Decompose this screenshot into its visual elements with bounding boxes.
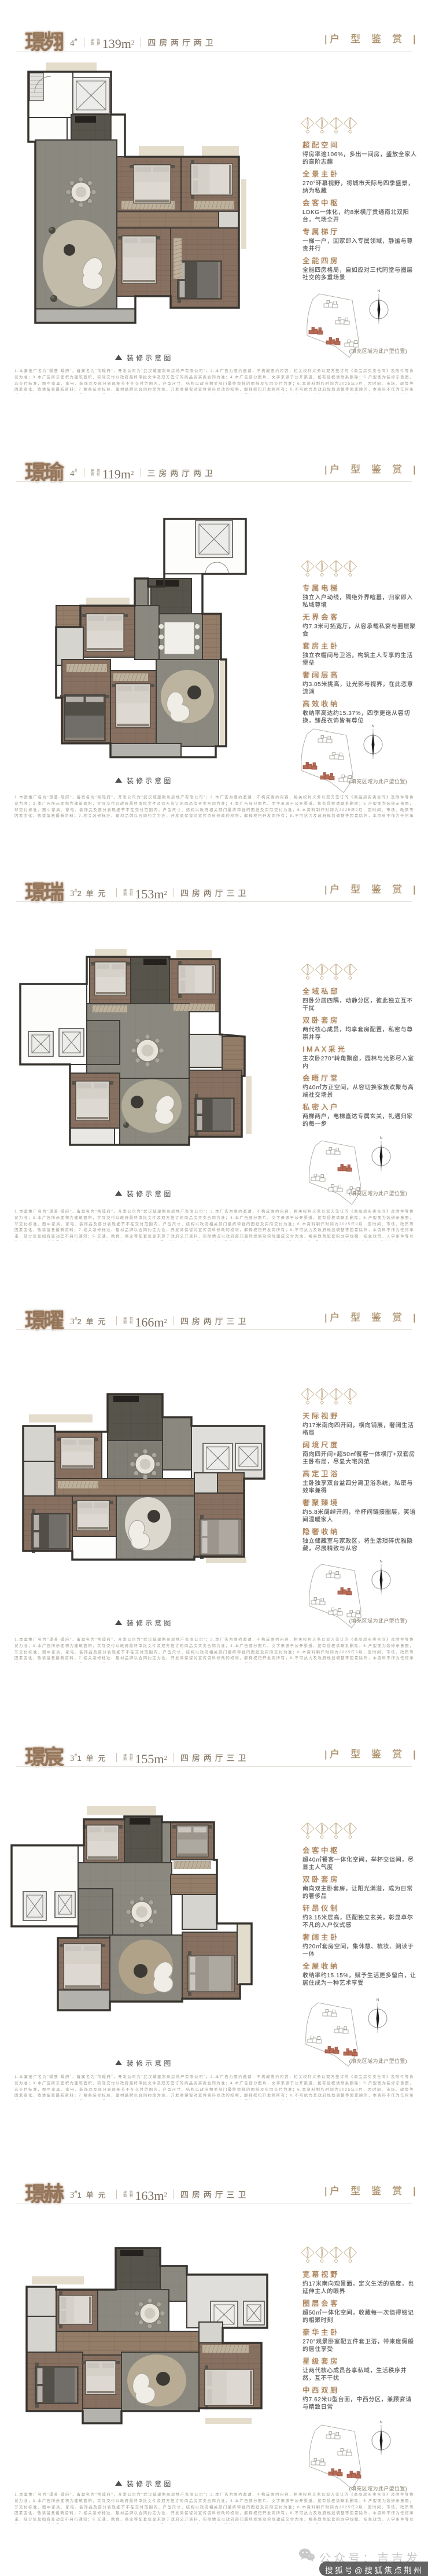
svg-text:N: N — [380, 2420, 383, 2424]
svg-text:N: N — [372, 724, 375, 728]
svg-text:N: N — [380, 1560, 383, 1564]
svg-text:N: N — [378, 289, 381, 293]
svg-text:N: N — [377, 1998, 379, 2002]
svg-text:N: N — [380, 1136, 383, 1140]
